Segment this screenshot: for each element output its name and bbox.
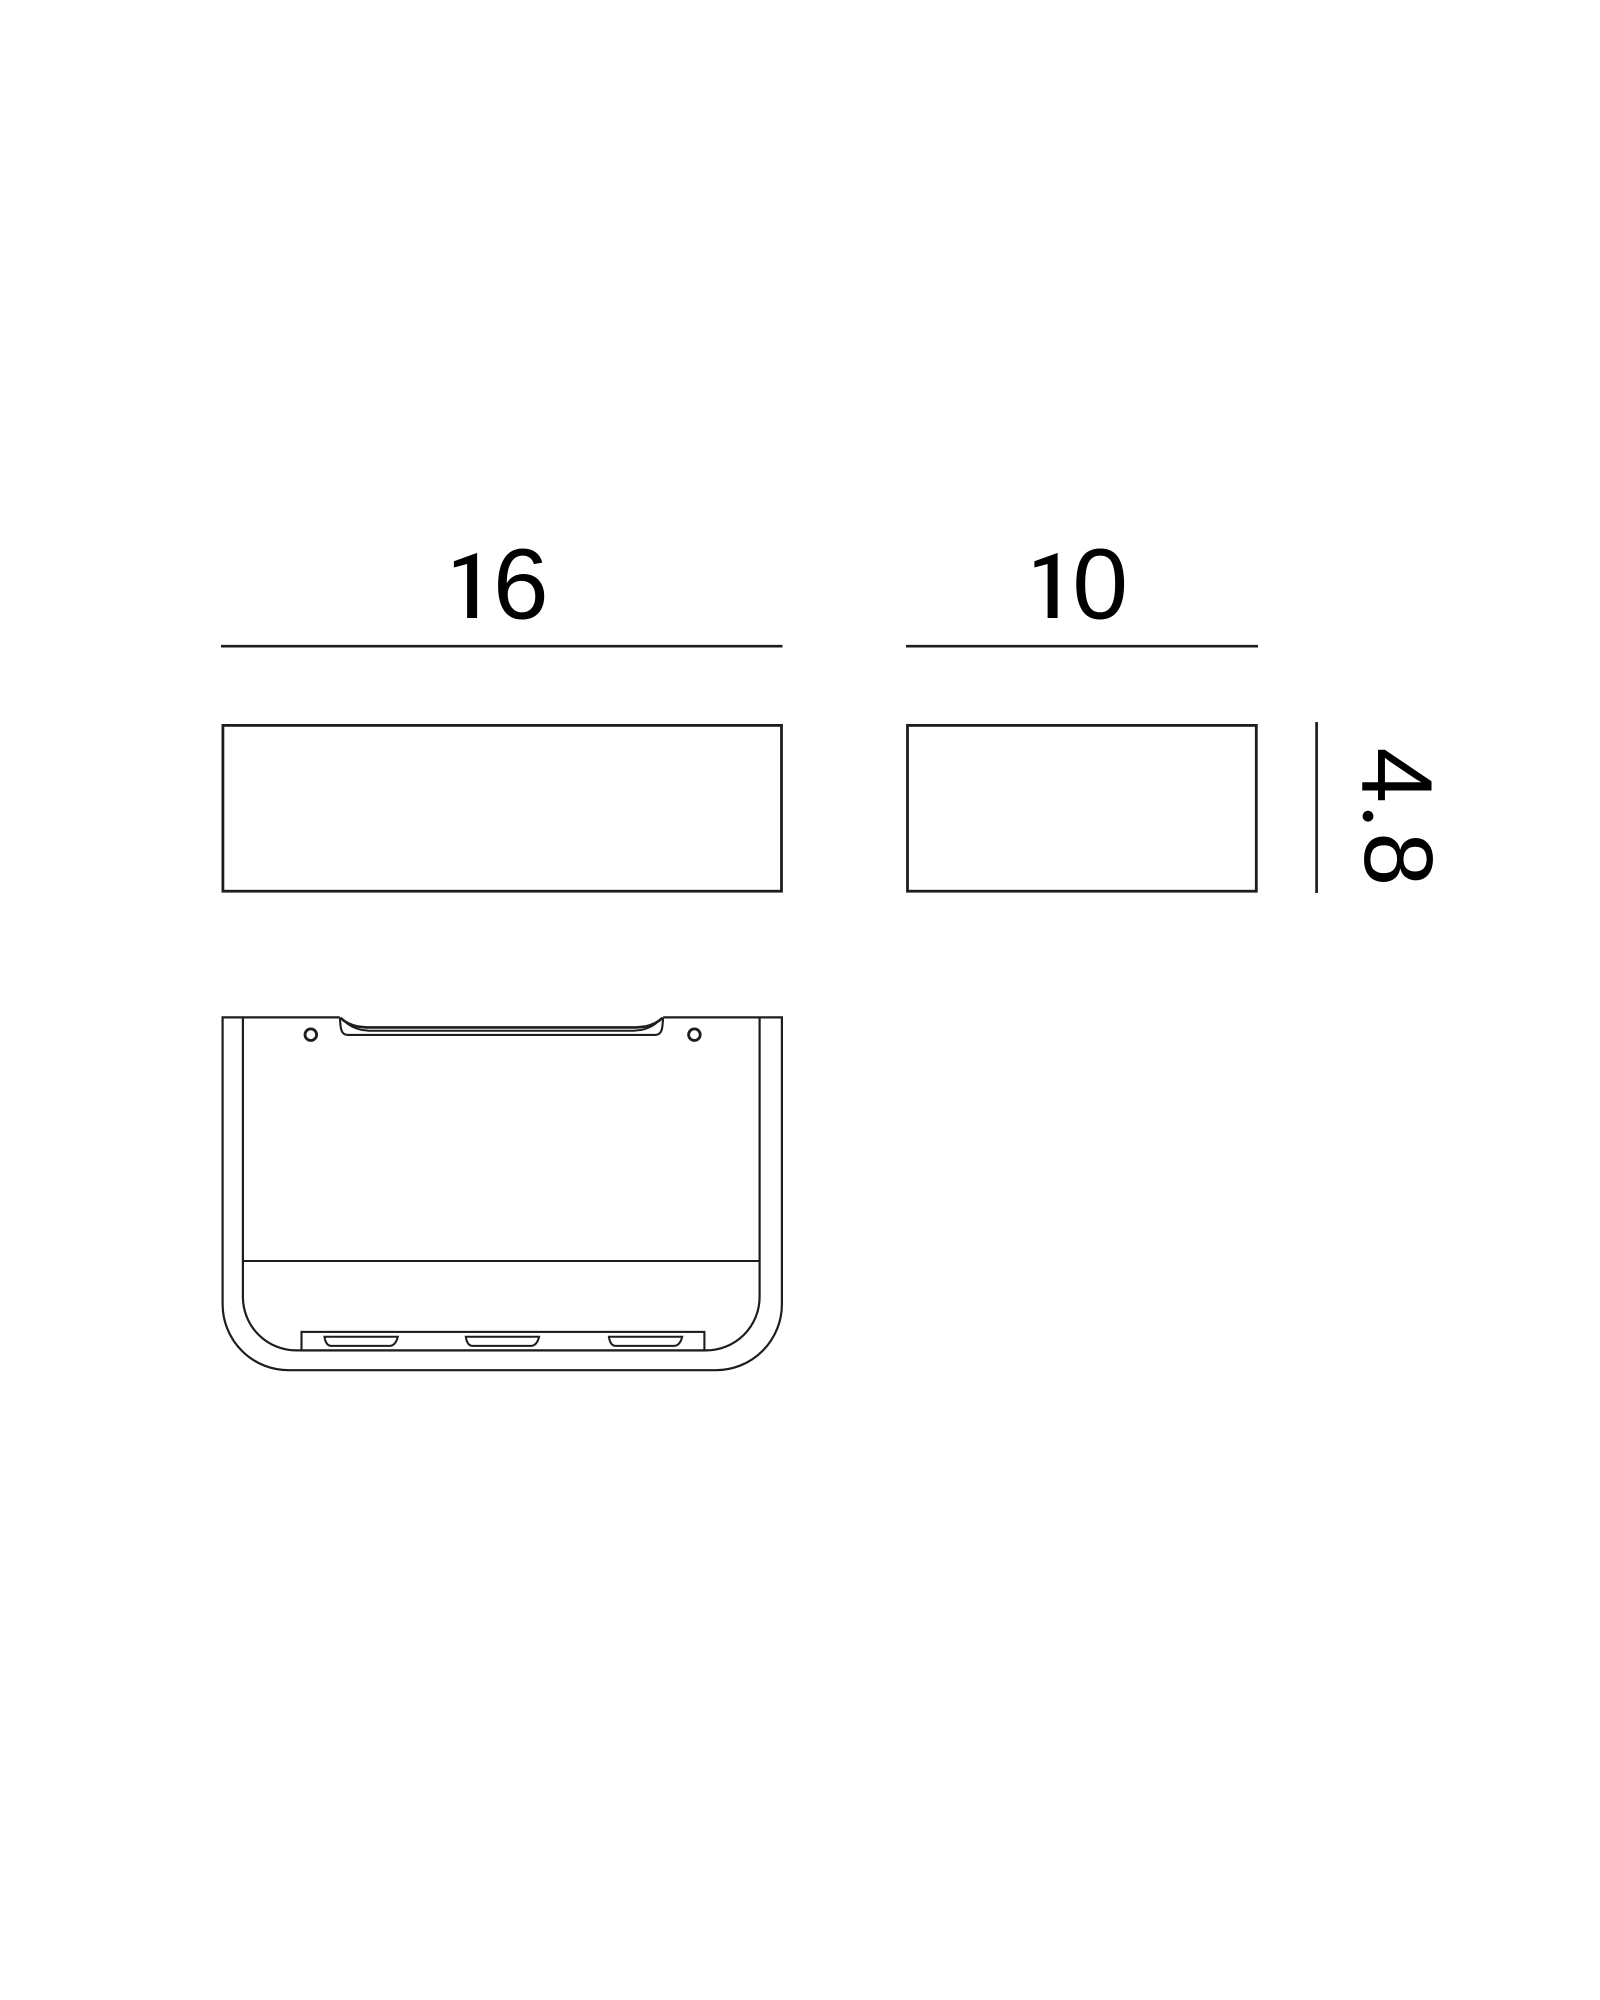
svg-text:8: 8	[1344, 832, 1453, 886]
svg-text:6: 6	[493, 529, 549, 641]
svg-text:4: 4	[1341, 747, 1453, 803]
svg-text:0: 0	[1072, 529, 1128, 641]
